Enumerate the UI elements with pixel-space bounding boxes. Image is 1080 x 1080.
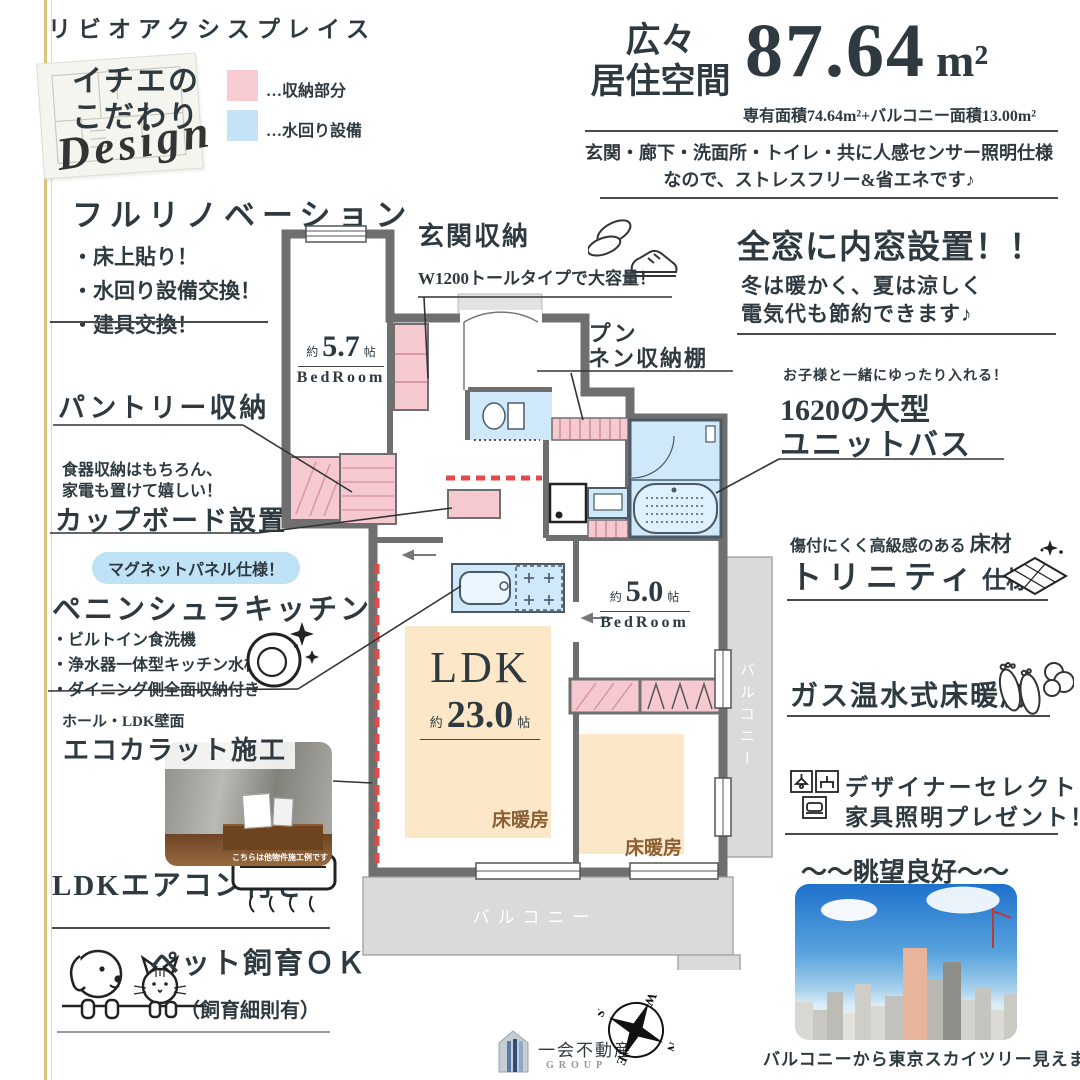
compass-s: S bbox=[598, 1007, 609, 1020]
renovation-item: ・水回り設備交換！ bbox=[72, 274, 261, 308]
balcony-label-bottom: バルコニー bbox=[430, 903, 640, 928]
ecocarat-frame bbox=[242, 793, 272, 829]
headline-spacious-line1: 広々 bbox=[583, 20, 738, 61]
floor-heating-label-ldk: 床暖房 bbox=[492, 805, 549, 832]
floor-tile-icon bbox=[1000, 534, 1070, 606]
company-logo-icon bbox=[498, 1030, 530, 1076]
flyer-page: リビオアクシスプレイス イチエの こだわり Design …収納部分 …水回り設… bbox=[0, 0, 1080, 1080]
kitchen-item: ・ビルトイン食洗機 bbox=[52, 628, 260, 653]
furniture-icon bbox=[790, 770, 840, 828]
ecocarat-cabinet bbox=[223, 824, 323, 850]
view-photo bbox=[795, 884, 1017, 1040]
ecocarat-caption: こちらは他物件施工例です bbox=[232, 852, 328, 863]
unit-bath-note: お子様と一緒にゆったり入れる！ bbox=[783, 365, 1008, 385]
legend-storage-label: …収納部分 bbox=[266, 77, 346, 101]
sensor-line2: なので、ストレスフリー&省エネです♪ bbox=[578, 167, 1060, 194]
ldk-unit: 帖 bbox=[517, 715, 530, 730]
bedroom1-label: 約 5.7 帖 BedRoom bbox=[293, 330, 389, 387]
ldk-name: LDK bbox=[408, 642, 552, 693]
bedroom2-label: 約 5.0 帖 BedRoom bbox=[592, 575, 697, 632]
headline-spacious-line2: 居住空間 bbox=[583, 61, 738, 102]
area-value: 87.64 bbox=[745, 8, 926, 95]
ldk-label: LDK 約 23.0 帖 bbox=[408, 642, 552, 742]
legend-plumbing-label: …水回り設備 bbox=[266, 117, 362, 141]
kitchen-item: ・ダイニング側全面収納付き bbox=[52, 678, 260, 703]
kitchen-badge: マグネットパネル仕様！ bbox=[92, 552, 300, 584]
ldk-size: 23.0 bbox=[447, 694, 514, 736]
flooring-title: トリニティ bbox=[790, 559, 978, 595]
bedroom1-unit: 帖 bbox=[364, 345, 376, 359]
bedroom1-approx: 約 bbox=[306, 345, 318, 359]
compass-icon: N E S W bbox=[598, 978, 674, 1074]
legend-plumbing-swatch bbox=[227, 110, 258, 141]
sensor-line1: 玄関・廊下・洗面所・トイレ・共に人感センサー照明仕様 bbox=[578, 140, 1060, 167]
building-name: リビオアクシスプレイス bbox=[48, 10, 376, 44]
area-unit: m² bbox=[936, 34, 988, 87]
bedroom1-size: 5.7 bbox=[322, 330, 360, 363]
compass-n: N bbox=[664, 1040, 674, 1055]
ldk-approx: 約 bbox=[430, 715, 443, 730]
flooring-title-row: トリニティ 仕様 bbox=[790, 552, 1030, 598]
bedroom2-size: 5.0 bbox=[626, 575, 664, 608]
unit-bath-line2: ユニットバス bbox=[780, 420, 972, 464]
cupboard-note2: 家電も置けて嬉しい！ bbox=[62, 477, 222, 501]
bedroom2-unit: 帖 bbox=[667, 590, 679, 604]
sensor-note: 玄関・廊下・洗面所・トイレ・共に人感センサー照明仕様 なので、ストレスフリー&省… bbox=[578, 140, 1060, 194]
area-detail: 専有面積74.64m²+バルコニー面積13.00m² bbox=[743, 102, 1036, 126]
pantry-title: パントリー収納 bbox=[58, 386, 269, 425]
bedroom2-approx: 約 bbox=[610, 590, 622, 604]
skyline-buildings bbox=[795, 884, 1017, 1040]
cupboard-title: カップボード設置 bbox=[55, 499, 287, 538]
view-caption: バルコニーから東京スカイツリー見えます！ bbox=[763, 1045, 1080, 1070]
furniture-line2: 家具照明プレゼント！ bbox=[845, 798, 1080, 832]
renovation-item: ・床上貼り！ bbox=[72, 240, 261, 274]
compass-w: W bbox=[641, 990, 660, 1008]
headline-spacious: 広々 居住空間 bbox=[583, 20, 738, 102]
floor-heating-label-bedroom2: 床暖房 bbox=[625, 833, 682, 860]
renovation-item: ・建具交換！ bbox=[72, 308, 261, 342]
legend-storage-swatch bbox=[227, 70, 258, 101]
feet-steam-icon bbox=[990, 654, 1074, 718]
kitchen-items: ・ビルトイン食洗機 ・浄水器一体型キッチン水栓 ・ダイニング側全面収納付き bbox=[52, 628, 260, 703]
area-figure: 87.64 m² bbox=[745, 8, 988, 95]
renovation-items: ・床上貼り！ ・水回り設備交換！ ・建具交換！ bbox=[72, 240, 261, 342]
balcony-label-right: バルコニー bbox=[736, 632, 757, 802]
kitchen-item: ・浄水器一体型キッチン水栓 bbox=[52, 653, 260, 678]
bedroom2-name: BedRoom bbox=[592, 614, 697, 632]
pet-sub: （飼育細則有） bbox=[180, 994, 320, 1023]
ecocarat-frame2 bbox=[272, 797, 293, 826]
furniture-line1: デザイナーセレクト bbox=[845, 768, 1079, 802]
ecocarat-title: エコカラット施工 bbox=[55, 728, 295, 769]
bedroom1-name: BedRoom bbox=[293, 369, 389, 387]
